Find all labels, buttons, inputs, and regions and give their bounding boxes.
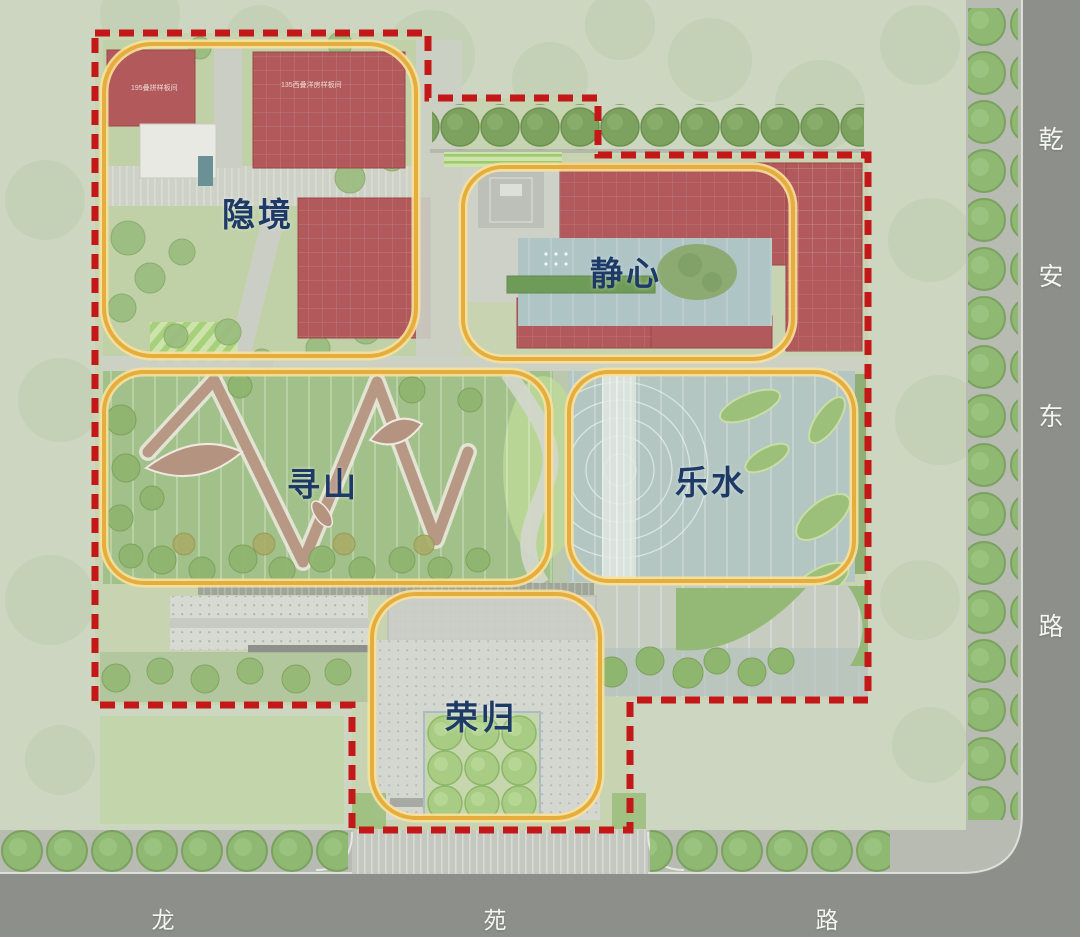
basketball-court bbox=[478, 172, 544, 228]
parking-area bbox=[170, 596, 370, 653]
road-label-east-char-4: 路 bbox=[1036, 607, 1066, 643]
zone-label-leshui: 乐水 bbox=[675, 456, 747, 504]
road-label-east-char-3: 东 bbox=[1036, 397, 1066, 433]
small-pool bbox=[198, 156, 213, 186]
road-label-east-char-1: 乾 bbox=[1036, 120, 1066, 156]
site-map bbox=[0, 0, 1080, 937]
zone-label-jingxin: 静心 bbox=[590, 247, 662, 295]
zone-area-jingxin bbox=[462, 163, 862, 351]
zone-label-xunshan: 寻山 bbox=[287, 458, 359, 506]
entry-crossing bbox=[316, 830, 684, 874]
road-label-south-char-3: 路 bbox=[812, 901, 842, 935]
road-label-south-char-2: 苑 bbox=[480, 901, 510, 935]
central-path bbox=[416, 40, 462, 360]
building-label-195: 195叠拼样板间 bbox=[131, 83, 178, 93]
southwest-lawn bbox=[100, 716, 344, 824]
road-label-south-char-1: 龙 bbox=[148, 901, 178, 935]
road-label-east-char-2: 安 bbox=[1036, 257, 1066, 293]
masterplan-page: 隐境 静心 寻山 乐水 荣归 195叠拼样板间 135西叠洋房样板间 乾 安 东… bbox=[0, 0, 1080, 937]
building-label-135: 135西叠洋房样板间 bbox=[281, 80, 342, 90]
zone-label-yinjing: 隐境 bbox=[222, 188, 294, 236]
zone-label-ronggui: 荣归 bbox=[445, 691, 517, 739]
